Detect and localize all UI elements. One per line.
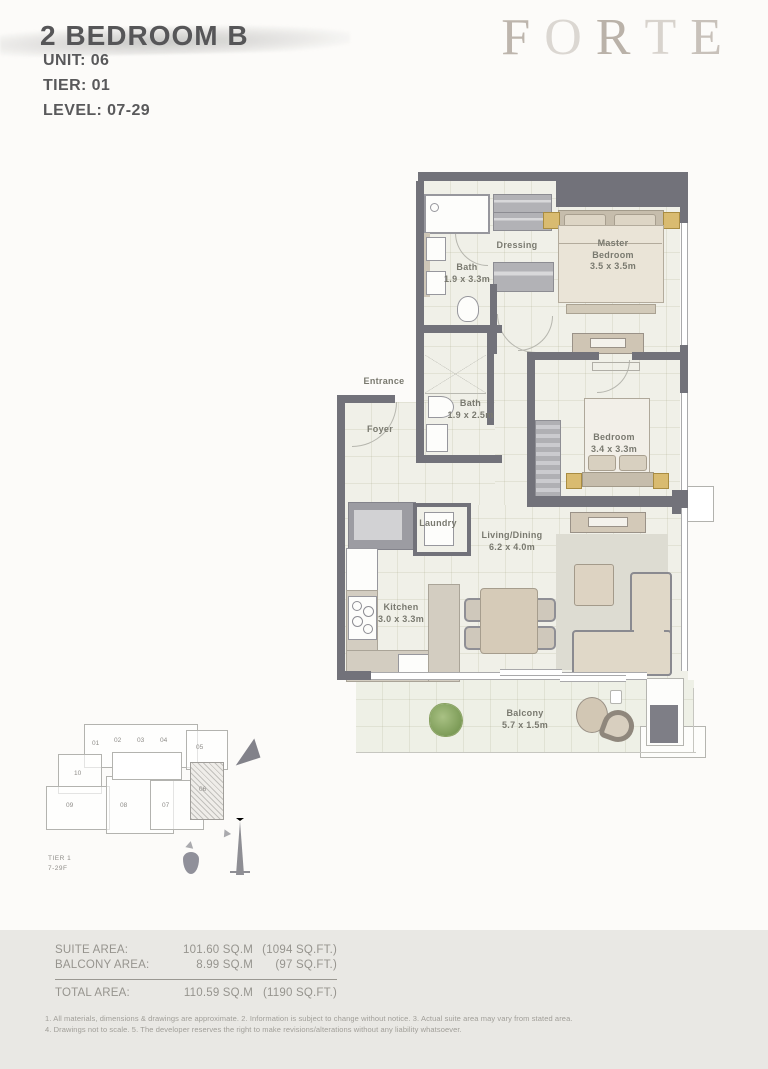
balcony-area-sqm: 8.99 SQ.M [165, 959, 253, 971]
bathtub-drain [430, 203, 439, 212]
room-label-laundry: Laundry [413, 518, 463, 530]
keyplan-block [46, 786, 110, 830]
room-label-bedroom: Bedroom 3.4 x 3.3m [584, 432, 644, 455]
bathtub [424, 194, 490, 234]
wall-segment [416, 181, 424, 332]
keyplan-unit-label: 01 [92, 740, 99, 747]
total-area-sqm: 110.59 SQ.M [165, 987, 253, 999]
keyplan-unit-label: 05 [196, 744, 203, 751]
balcony-edge [356, 752, 696, 753]
shelf [592, 362, 640, 371]
keyplan-highlighted-unit [190, 762, 224, 820]
tier-label: TIER: 01 [43, 77, 110, 95]
foyer-closet-shelf [354, 510, 402, 540]
dining-table [480, 588, 538, 654]
window [681, 393, 688, 490]
total-area-label: TOTAL AREA: [55, 987, 165, 999]
wall-segment [337, 395, 395, 403]
wall-segment [337, 395, 345, 680]
keyplan-unit-label: 10 [74, 770, 81, 777]
logo-letter: F [501, 8, 544, 67]
bed-bench [566, 304, 656, 314]
balcony-edge [693, 688, 694, 753]
north-arrow-icon [230, 738, 261, 765]
brochure-page: 2 BEDROOM B UNIT: 06 TIER: 01 LEVEL: 07-… [0, 0, 768, 1069]
suite-area-label: SUITE AREA: [55, 944, 165, 956]
keyplan-highlighted-unit-label: 06 [199, 786, 206, 793]
balcony-area-label: BALCONY AREA: [55, 959, 165, 971]
bed-headboard [582, 472, 654, 487]
toilet [457, 296, 479, 322]
room-label-master-bedroom: Master Bedroom 3.5 x 3.5m [584, 238, 642, 273]
room-label-foyer: Foyer [355, 424, 405, 436]
disclaimer-line-1: 1. All materials, dimensions & drawings … [45, 1014, 735, 1023]
plant [430, 704, 462, 736]
dining-chair [536, 598, 556, 622]
suite-area-sqft: (1094 SQ.FT.) [253, 944, 337, 956]
nightstand [663, 212, 680, 229]
keyplan-unit-label: 02 [114, 737, 121, 744]
balcony-area-sqft: (97 SQ.FT.) [253, 959, 337, 971]
room-label-kitchen: Kitchen 3.0 x 3.3m [370, 602, 432, 625]
sliding-door-panel [560, 675, 626, 682]
wall-segment [416, 333, 424, 463]
sink [426, 237, 446, 261]
forte-logo: F O R T E [501, 8, 736, 67]
fridge [346, 548, 378, 592]
suite-area-row: SUITE AREA: 101.60 SQ.M (1094 SQ.FT.) [55, 944, 337, 956]
burj-khalifa-base [230, 871, 250, 873]
sink [426, 424, 448, 452]
logo-letter: T [644, 8, 690, 67]
wall-segment [680, 181, 688, 223]
keyplan-unit-label: 04 [160, 737, 167, 744]
burner [352, 601, 362, 611]
room-label-bath2: Bath 1.9 x 2.5m [443, 398, 498, 421]
tv-console-drawer [588, 517, 628, 527]
room-label-dressing: Dressing [486, 240, 548, 252]
level-label: LEVEL: 07-29 [43, 102, 150, 120]
room-label-balcony: Balcony 5.7 x 1.5m [494, 708, 556, 731]
sliding-door-panel [500, 669, 562, 676]
total-area-row: TOTAL AREA: 110.59 SQ.M (1190 SQ.FT.) [55, 987, 337, 999]
room-label-entrance: Entrance [354, 376, 414, 388]
logo-letter: E [690, 8, 736, 67]
keyplan-levels-label: 7-29F [48, 865, 67, 872]
total-area-sqft: (1190 SQ.FT.) [253, 987, 337, 999]
wall-segment [337, 671, 371, 680]
drain-box [610, 690, 622, 704]
wall-segment [527, 352, 535, 506]
window [681, 508, 688, 671]
keyplan-tier-label: TIER 1 [48, 855, 71, 862]
wall-segment [418, 172, 688, 181]
keyplan-unit-label: 03 [137, 737, 144, 744]
keyplan-core [112, 752, 182, 780]
wall-segment [632, 352, 688, 360]
wall-segment [416, 455, 502, 463]
keyplan-unit-label: 09 [66, 802, 73, 809]
armchair [574, 564, 614, 606]
kitchen-peninsula [428, 584, 460, 682]
room-label-living-dining: Living/Dining 6.2 x 4.0m [472, 530, 552, 553]
keyplan-unit-label: 07 [162, 802, 169, 809]
window [681, 223, 688, 345]
room-label-bath1: Bath 1.9 x 3.3m [438, 262, 496, 285]
balcony-area-row: BALCONY AREA: 8.99 SQ.M (97 SQ.FT.) [55, 959, 337, 971]
pillow [588, 455, 616, 471]
closet [493, 194, 552, 213]
unit-label: UNIT: 06 [43, 52, 109, 70]
shield-icon [183, 852, 199, 874]
wall-segment [527, 496, 688, 507]
nightstand [653, 473, 669, 489]
disclaimer-line-2: 4. Drawings not to scale. 5. The develop… [45, 1025, 735, 1034]
burner [363, 624, 373, 634]
nightstand [566, 473, 582, 489]
direction-arrow-icon [221, 828, 231, 838]
page-title: 2 BEDROOM B [40, 20, 249, 52]
dresser-drawer [590, 338, 626, 348]
area-table: SUITE AREA: 101.60 SQ.M (1094 SQ.FT.) BA… [55, 944, 337, 1002]
burner [352, 616, 363, 627]
shower [425, 355, 486, 394]
wall-segment [527, 352, 599, 360]
wall-segment [556, 181, 688, 207]
suite-area-sqm: 101.60 SQ.M [165, 944, 253, 956]
area-table-divider [55, 979, 337, 980]
direction-arrow-icon [185, 840, 194, 849]
closet [493, 262, 554, 292]
balcony-column [650, 705, 678, 743]
exterior-ledge [686, 486, 714, 522]
keyplan-unit-label: 08 [120, 802, 127, 809]
sofa-corner [634, 630, 664, 668]
wardrobe [535, 420, 561, 498]
dining-chair [536, 626, 556, 650]
burj-khalifa-icon [236, 818, 244, 875]
logo-letter: O [544, 8, 596, 67]
logo-letter: R [596, 8, 645, 67]
pillow [619, 455, 647, 471]
